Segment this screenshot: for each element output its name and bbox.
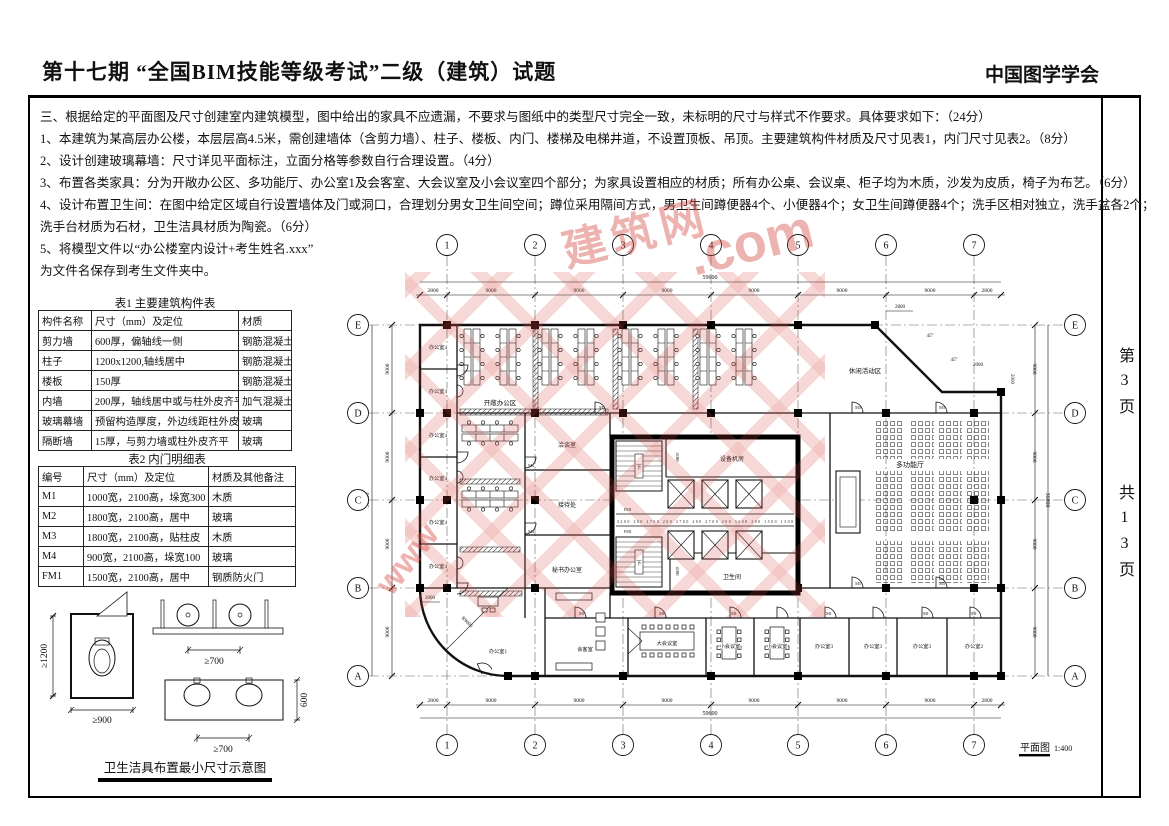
table-cell: 预留构造厚度，外边线距柱外皮200 xyxy=(92,411,239,431)
instruction-line: 1、本建筑为某高层办公楼，本层层高4.5米，需创建墙体（含剪力墙）、柱子、楼板、… xyxy=(40,128,1102,147)
dim-label: 9000 xyxy=(925,288,936,294)
grid-bubble-label: 4 xyxy=(709,241,714,252)
room-label-hall: 多功能厅 xyxy=(896,460,924,469)
elevator-shaft xyxy=(702,531,728,559)
table-cell: 木质 xyxy=(209,527,296,547)
dim-label: 9000 xyxy=(662,698,673,704)
instruction-line: 3、布置各类家具：分为开敞办公区、多功能厅、办公室1及会客室、大会议室及小会议室… xyxy=(40,172,1102,191)
table-cell: 木质 xyxy=(209,487,296,507)
room-label-office3: 办公室3 xyxy=(913,642,932,650)
table-cell: 钢质防火门 xyxy=(209,567,296,587)
caption-underline xyxy=(98,778,272,782)
grid-bubble-label: 3 xyxy=(621,741,626,752)
stair-down-label: 下 xyxy=(636,560,642,567)
table-header: 材质及其他备注 xyxy=(209,467,296,487)
room-label-office1: 办公室1 xyxy=(489,647,508,655)
instruction-line: 三、根据给定的平面图及尺寸创建室内建筑模型，图中给出的家具不应遗漏，不要求与图纸… xyxy=(40,106,1102,125)
table2-caption: 表2 内门明细表 xyxy=(38,451,296,467)
table-cell: M4 xyxy=(39,547,84,567)
table-row: FM11500宽，2100高，居中钢质防火门 xyxy=(39,567,296,587)
dim-label: 9000 xyxy=(385,626,391,637)
room-label-equipment: 设备机房 xyxy=(720,455,744,463)
dim-label: 9000 xyxy=(749,288,760,294)
table-cell: 剪力墙 xyxy=(39,331,92,351)
table-cell: 钢筋混凝土 xyxy=(239,371,292,391)
grid-bubble-label: A xyxy=(1071,672,1079,683)
dim-label: 9000 xyxy=(1031,627,1037,638)
table-cell: 玻璃幕墙 xyxy=(39,411,92,431)
elevator-shaft xyxy=(702,480,728,508)
room-label-meeting-s: 小会议室 xyxy=(767,642,788,650)
dim-label: 4100 xyxy=(675,567,680,577)
door-label: M3 xyxy=(939,405,945,410)
table-cell: 楼板 xyxy=(39,371,92,391)
organization-name: 中国图学学会 xyxy=(985,60,1099,87)
seating-rows xyxy=(875,471,989,533)
dim-label: 2000 xyxy=(425,596,436,601)
dim-label: 9000 xyxy=(486,288,497,294)
table-cell: M1 xyxy=(39,487,84,507)
room-label-office4: 办公室4 xyxy=(429,387,448,395)
exam-sheet: 第十七期 “全国BIM技能等级考试”二级（建筑）试题 中国图学学会 第3页 共1… xyxy=(0,0,1169,826)
room-label-meeting-s: 小会议室 xyxy=(720,642,741,650)
core-dim-string: 3200 200 2700 200 2700 200 2700 200 3600… xyxy=(617,520,793,524)
table-row: 玻璃幕墙预留构造厚度，外边线距柱外皮200玻璃 xyxy=(39,411,292,431)
dim-label: 9000 xyxy=(925,698,936,704)
dim-label: 2000 xyxy=(1009,374,1014,385)
table-row: 剪力墙600厚，偏轴线一侧钢筋混凝土 xyxy=(39,331,292,351)
dim-label: 2800 xyxy=(428,288,439,294)
dim-label: ≥900 xyxy=(92,716,112,726)
table-cell: M2 xyxy=(39,507,84,527)
dim-label: 2000 xyxy=(973,363,984,368)
dim-label: 2800 xyxy=(428,698,439,704)
door-label: M1 xyxy=(826,611,832,616)
room-label-talk: 洽谈室 xyxy=(558,441,576,449)
service-core: 设备机房 卫生间 下 下 3200 200 2700 200 2700 200 … xyxy=(612,437,798,593)
grid-bubble-label: B xyxy=(1072,584,1079,595)
room-label-office3: 办公室3 xyxy=(815,642,834,650)
grid-bubble-label: B xyxy=(355,584,362,595)
dim-label: 9000 xyxy=(749,698,760,704)
multifunction-hall xyxy=(836,419,989,583)
grid-bubble-label: 6 xyxy=(884,241,889,252)
room-label-open-office: 开敞办公区 xyxy=(484,398,517,407)
sanitary-caption: 卫生洁具布置最小尺寸示意图 xyxy=(104,760,267,775)
grid-bubble-label: C xyxy=(1072,496,1079,507)
grid-bubble-label: 5 xyxy=(796,241,801,252)
dim-label: 59600 xyxy=(703,711,718,717)
elevator-shaft xyxy=(736,531,762,559)
door-label: M4 xyxy=(528,463,535,468)
table-cell: FM1 xyxy=(39,567,84,587)
table-row: 楼板150厚钢筋混凝土 xyxy=(39,371,292,391)
dim-label: ≥700 xyxy=(213,745,233,755)
table-row: 内墙200厚，轴线居中或与柱外皮齐平加气混凝土砌块 xyxy=(39,391,292,411)
page-total: 共13页 xyxy=(1110,460,1136,610)
room-label-reception: 接待处 xyxy=(558,501,576,509)
table-cell: 内墙 xyxy=(39,391,92,411)
plan-title-block: 平面图 1:400 xyxy=(1019,742,1072,756)
table-cell: 隔断墙 xyxy=(39,431,92,451)
seating-rows xyxy=(875,541,989,583)
door-label: M1 xyxy=(971,611,977,616)
dim-label: 9000 xyxy=(574,288,585,294)
dim-label: 2800 xyxy=(895,305,906,310)
angle-label: 45° xyxy=(927,334,934,339)
door-label: M1 xyxy=(659,611,665,616)
dim-label: 9000 xyxy=(486,698,497,704)
door-label: M1 xyxy=(579,611,585,616)
dim-label: 2800 xyxy=(982,698,993,704)
room-label-meeting-l: 大会议室 xyxy=(657,639,678,647)
dim-label: 9000 xyxy=(662,288,673,294)
table-row: 隔断墙15厚，与剪力墙或柱外皮齐平玻璃 xyxy=(39,431,292,451)
table-row: 柱子1200x1200,轴线居中钢筋混凝土 xyxy=(39,351,292,371)
table-cell: 600厚，偏轴线一侧 xyxy=(92,331,239,351)
grid-bubble-label: D xyxy=(354,409,361,420)
grid-bubble-label: 4 xyxy=(709,741,714,752)
dim-label: 59600 xyxy=(703,275,718,281)
dim-label: 9000 xyxy=(385,538,391,549)
sanitary-fixture-diagram: ≥900 ≥1200 ≥700 ≥700 600 卫生洁具布置最小尺寸示意图 xyxy=(35,588,335,793)
building-components-table: 构件名称 尺寸（mm）及定位 材质 剪力墙600厚，偏轴线一侧钢筋混凝土 柱子1… xyxy=(38,310,292,451)
table-cell: 加气混凝土砌块 xyxy=(239,391,292,411)
stair-down-label: 下 xyxy=(636,464,642,471)
door-label: M3 xyxy=(855,581,861,586)
door-label: M1 xyxy=(731,611,737,616)
dim-label: 9000 xyxy=(574,698,585,704)
grid-bubble-label: 3 xyxy=(621,241,626,252)
door-label: M3 xyxy=(939,581,945,586)
room-label-office3: 办公室3 xyxy=(864,642,883,650)
table-cell: 钢筋混凝土 xyxy=(239,331,292,351)
seating-rows xyxy=(875,419,989,459)
table-row: M21800宽，2100高，居中玻璃 xyxy=(39,507,296,527)
floor-plan-drawing: 59600 2800 9000 9000 9000 9000 9000 9000… xyxy=(330,225,1090,770)
grid-bubble-label: E xyxy=(1072,321,1078,332)
table-cell: 1000宽，2100高，垛宽300 xyxy=(84,487,209,507)
grid-bubble-label: 1 xyxy=(445,241,450,252)
table-header: 构件名称 xyxy=(39,311,92,331)
table-cell: 玻璃 xyxy=(209,507,296,527)
table-cell: 玻璃 xyxy=(239,411,292,431)
grid-bubble-label: 2 xyxy=(533,741,538,752)
dim-label: 4100 xyxy=(675,453,680,463)
table-cell: 1500宽，2100高，居中 xyxy=(84,567,209,587)
table-cell: M3 xyxy=(39,527,84,547)
door-label: M4 xyxy=(528,529,535,534)
door-label: M3 xyxy=(855,405,861,410)
room-label-office4: 办公室4 xyxy=(429,474,448,482)
room-label-office4: 办公室4 xyxy=(429,343,448,351)
table-row: M31800宽，2100高，贴柱皮木质 xyxy=(39,527,296,547)
grid-bubble-label: 7 xyxy=(972,241,977,252)
stage xyxy=(836,471,860,533)
table-cell: 900宽，2100高，垛宽100 xyxy=(84,547,209,567)
table-header: 尺寸（mm）及定位 xyxy=(92,311,239,331)
door-label: FM1 xyxy=(624,507,632,512)
table-row: M11000宽，2100高，垛宽300木质 xyxy=(39,487,296,507)
room-label-office4: 办公室4 xyxy=(429,431,448,439)
table-row: M4900宽，2100高，垛宽100玻璃 xyxy=(39,547,296,567)
table-header: 编号 xyxy=(39,467,84,487)
table-header: 尺寸（mm）及定位 xyxy=(84,467,209,487)
table-cell: 1800宽，2100高，居中 xyxy=(84,507,209,527)
table-cell: 钢筋混凝土 xyxy=(239,351,292,371)
table-cell: 200厚，轴线居中或与柱外皮齐平 xyxy=(92,391,239,411)
room-label-office4: 办公室4 xyxy=(429,518,448,526)
grid-bubble-label: 2 xyxy=(533,241,538,252)
table-cell: 1200x1200,轴线居中 xyxy=(92,351,239,371)
plan-title: 平面图 xyxy=(1020,742,1050,754)
elevator-shaft xyxy=(668,480,694,508)
dim-label: 9000 xyxy=(837,698,848,704)
elevator-shaft xyxy=(668,531,694,559)
room-label-office4: 办公室4 xyxy=(429,562,448,570)
dim-label: 9000 xyxy=(385,451,391,462)
angle-label: 45° xyxy=(951,358,958,363)
room-label-secretary: 秘书办公室 xyxy=(552,566,582,574)
instruction-line: 5、将模型文件以“办公楼室内设计+考生姓名.xxx” xyxy=(40,238,360,257)
grid-bubble-label: 5 xyxy=(796,741,801,752)
table-cell: 1800宽，2100高，贴柱皮 xyxy=(84,527,209,547)
table-cell: 15厚，与剪力墙或柱外皮齐平 xyxy=(92,431,239,451)
instruction-line: 2、设计创建玻璃幕墙：尺寸详见平面标注，立面分格等参数自行合理设置。（4分） xyxy=(40,150,1102,169)
dim-label: 9000 xyxy=(1031,452,1037,463)
room-label-guest: 会客室 xyxy=(577,645,593,653)
grid-bubble-label: 7 xyxy=(972,741,977,752)
grid-bubble-label: 1 xyxy=(445,741,450,752)
page-title: 第十七期 “全国BIM技能等级考试”二级（建筑）试题 xyxy=(42,56,556,86)
grid-bubble-label: A xyxy=(354,672,362,683)
elevator-shaft xyxy=(736,480,762,508)
dim-label: 600 xyxy=(300,693,310,708)
table-cell: 柱子 xyxy=(39,351,92,371)
dim-label: 9000 xyxy=(385,363,391,374)
dim-label: ≥1200 xyxy=(40,644,50,668)
plan-scale: 1:400 xyxy=(1054,744,1072,753)
room-label-toilet: 卫生间 xyxy=(723,573,741,581)
table-header: 材质 xyxy=(239,311,292,331)
door-label: M1 xyxy=(923,611,929,616)
table-cell: 150厚 xyxy=(92,371,239,391)
room-label-leisure: 休闲活动区 xyxy=(849,366,882,375)
table1-caption: 表1 主要建筑构件表 xyxy=(38,295,292,311)
grid-bubble-label: 6 xyxy=(884,741,889,752)
dim-label: ≥700 xyxy=(204,657,224,667)
radius-label: R9000 xyxy=(460,616,473,629)
dim-label: 9000 xyxy=(1031,539,1037,550)
grid-bubble-label: D xyxy=(1071,409,1078,420)
dim-label: 9000 xyxy=(837,288,848,294)
stall-door xyxy=(97,592,127,616)
door-label: M2 xyxy=(599,405,605,410)
instruction-line: 4、设计布置卫生间：在图中给定区域自行设置墙体及门或洞口，合理划分男女卫生间空间… xyxy=(40,194,1102,213)
table-cell: 玻璃 xyxy=(239,431,292,451)
dim-label: 36000 xyxy=(1044,493,1050,508)
page-number: 第3页 xyxy=(1110,315,1136,455)
grid-bubble-label: C xyxy=(355,496,362,507)
room-label-office2: 办公室2 xyxy=(965,642,984,650)
grid-bubble-label: E xyxy=(355,321,361,332)
dim-label: 9000 xyxy=(1031,364,1037,375)
instruction-line: 为文件名保存到考生文件夹中。 xyxy=(40,260,360,279)
table-cell: 玻璃 xyxy=(209,547,296,567)
door-schedule-table: 编号 尺寸（mm）及定位 材质及其他备注 M11000宽，2100高，垛宽300… xyxy=(38,466,296,587)
dim-label: 2800 xyxy=(982,288,993,294)
door-label: FM1 xyxy=(624,529,632,534)
